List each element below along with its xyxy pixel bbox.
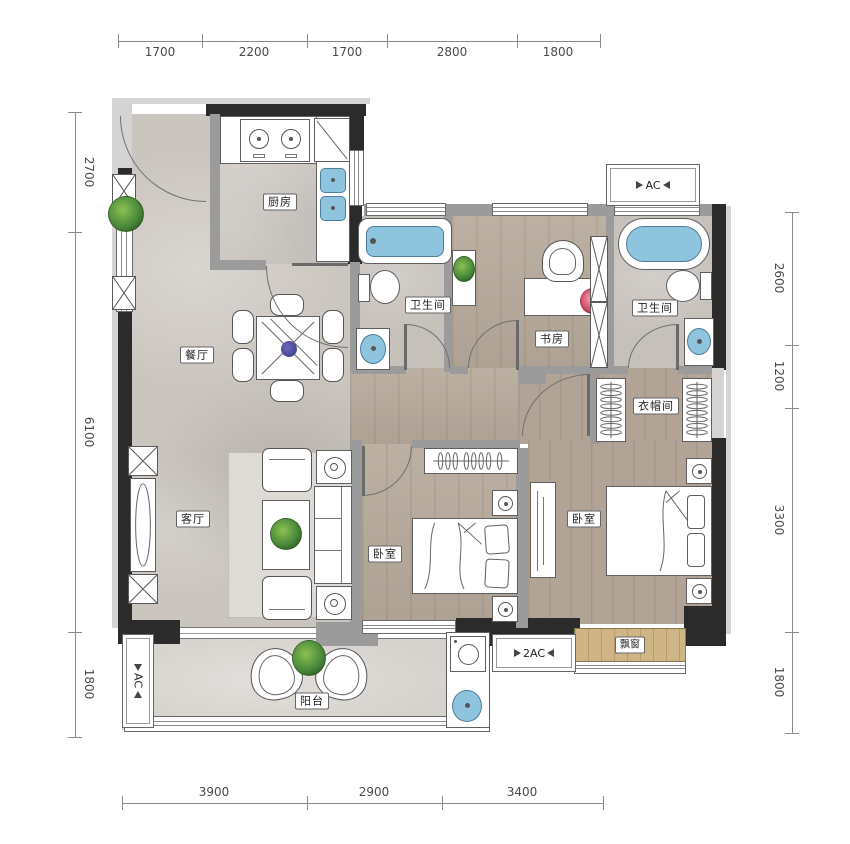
study-cabinet: [590, 302, 608, 368]
balcony-sink: [452, 690, 482, 722]
shaft-box-icon: [128, 574, 158, 604]
ac-platform-double: 2AC: [492, 634, 576, 672]
ac-balcony-label: AC: [132, 673, 145, 688]
bathroom2-door-leaf: [676, 324, 679, 370]
ac-platform-balcony: AC: [122, 634, 154, 728]
study-cabinet: [590, 236, 608, 302]
nightstand: [686, 458, 712, 484]
bathroom1-door-leaf: [404, 324, 407, 370]
bathtub-1-water: [366, 226, 444, 257]
floor-plan: AC 2AC AC 厨房 餐厅 客厅 卫生间 书房 卫生间 衣帽间 卧室 卧室 …: [0, 0, 850, 844]
bed-single: [412, 518, 518, 594]
dim-tick: [122, 796, 123, 810]
armchair: [262, 448, 312, 492]
bathtub-faucet-icon: [370, 238, 376, 244]
dining-centerpiece: [281, 341, 297, 357]
dim-tick: [387, 34, 388, 48]
dim-value: 3400: [507, 785, 538, 799]
window-bay: [574, 660, 686, 674]
dim-value: 1800: [543, 45, 574, 59]
room-label-bathroom-2: 卫生间: [632, 300, 678, 317]
dim-value: 1700: [332, 45, 363, 59]
room-label-bathroom-1: 卫生间: [405, 297, 451, 314]
wall-bathroom1-south-b: [450, 366, 468, 374]
dim-line-left: [75, 112, 76, 737]
dim-value: 1700: [145, 45, 176, 59]
wall-bathroom2-south: [678, 366, 712, 374]
dim-tick: [785, 733, 799, 734]
nightstand: [686, 578, 712, 604]
shell-right: [726, 206, 731, 634]
dim-line-right: [792, 212, 793, 733]
nightstand: [492, 490, 518, 516]
toilet-2-tank: [700, 272, 712, 300]
wall-bottom-right-corner: [684, 606, 726, 646]
sink-1: [360, 334, 386, 364]
armchair: [262, 576, 312, 620]
ac-mark-icon: [547, 649, 554, 657]
window-bathroom1: [366, 203, 446, 216]
bedroom1-door-leaf: [362, 446, 365, 496]
dim-value: 2600: [772, 263, 786, 294]
study-plant-icon: [453, 256, 475, 282]
dim-value: 1200: [772, 361, 786, 392]
ac-top-label: AC: [645, 179, 660, 192]
pillow: [484, 558, 509, 588]
dim-tick: [307, 34, 308, 48]
room-label-bedroom-1: 卧室: [368, 546, 402, 563]
desk-chair: [542, 240, 584, 282]
dim-tick: [785, 632, 799, 633]
dim-line-top: [118, 41, 600, 42]
dim-value: 1800: [82, 669, 96, 700]
dim-tick: [68, 112, 82, 113]
shaft-box-icon: [128, 446, 158, 476]
dim-tick: [68, 232, 82, 233]
toilet-1-bowl: [370, 270, 400, 304]
room-label-kitchen: 厨房: [263, 194, 297, 211]
kitchen-corner-unit: [314, 118, 350, 162]
dim-tick: [118, 34, 119, 48]
side-table: [316, 450, 352, 484]
dining-chair: [270, 380, 304, 402]
clothes-rack: [682, 378, 712, 442]
toilet-1-tank: [358, 274, 370, 302]
wall-kitchen-left: [210, 114, 220, 268]
ac-mark-icon: [663, 181, 670, 189]
dim-value: 3900: [199, 785, 230, 799]
sliding-door-living-balcony: [180, 627, 316, 639]
wall-bedroom1-north: [412, 440, 520, 448]
window-balcony: [124, 716, 490, 732]
kitchen-sink-basin-2: [320, 196, 346, 221]
potted-plant-icon: [108, 196, 144, 232]
dim-tick: [307, 796, 308, 810]
dim-value: 2700: [82, 157, 96, 188]
bathtub-2-water: [626, 226, 702, 262]
room-label-cloakroom: 衣帽间: [633, 398, 679, 415]
wall-top-kitchen: [206, 104, 366, 116]
bedroom2-tv-cabinet: [530, 482, 556, 578]
nightstand: [492, 596, 518, 622]
room-label-bay-window: 飘窗: [615, 637, 645, 654]
dim-tick: [202, 34, 203, 48]
wall-right-lower: [712, 438, 726, 634]
dim-tick: [603, 796, 604, 810]
room-label-balcony: 阳台: [295, 693, 329, 710]
wardrobe: [424, 448, 518, 474]
bedroom2-door-leaf: [587, 374, 590, 436]
window-bedroom1: [362, 620, 456, 634]
kitchen-sink-basin-1: [320, 168, 346, 193]
sofa: [314, 486, 352, 584]
tv-console: [130, 478, 156, 572]
coffee-table-plant-icon: [270, 518, 302, 550]
dim-tick: [785, 408, 799, 409]
ac-platform-top: AC: [606, 164, 700, 206]
room-label-study: 书房: [535, 331, 569, 348]
dim-tick: [517, 34, 518, 48]
ac-mark-icon: [636, 181, 643, 189]
dim-value: 2800: [437, 45, 468, 59]
ac-mark-icon: [134, 691, 142, 698]
wall-right-cloakroom: [712, 368, 724, 440]
dim-tick: [785, 212, 799, 213]
dim-tick: [68, 737, 82, 738]
bed-double: [606, 486, 712, 576]
pillow: [687, 533, 705, 567]
window-kitchen: [349, 150, 364, 206]
side-table: [316, 586, 352, 620]
dim-value: 2900: [359, 785, 390, 799]
washing-machine: [450, 636, 486, 672]
pillow: [484, 524, 510, 555]
clothes-rack: [596, 378, 626, 442]
dim-value: 2200: [239, 45, 270, 59]
toilet-2-bowl: [666, 270, 700, 302]
sink-2: [687, 328, 711, 355]
dim-tick: [442, 796, 443, 810]
study-door-leaf: [516, 320, 519, 370]
ac-mark-icon: [134, 664, 142, 671]
wall-kitchen-bottom: [210, 260, 266, 270]
balcony-plant-icon: [292, 640, 326, 676]
wall-corridor-stub: [518, 366, 546, 384]
kitchen-door-leaf: [292, 263, 348, 266]
dim-tick: [68, 632, 82, 633]
dim-value: 1800: [772, 667, 786, 698]
dim-tick: [785, 345, 799, 346]
shaft-box-icon: [112, 276, 136, 310]
dim-tick: [600, 34, 601, 48]
window-study: [492, 203, 588, 216]
wall-kitchen-right-top: [348, 104, 364, 152]
room-label-dining: 餐厅: [180, 347, 214, 364]
dim-value: 6100: [82, 417, 96, 448]
dim-value: 3300: [772, 505, 786, 536]
stove: [240, 119, 310, 162]
ac-mark-icon: [514, 649, 521, 657]
room-label-living: 客厅: [176, 511, 210, 528]
floor-corridor: [350, 368, 518, 444]
dining-chair: [322, 348, 344, 382]
dining-chair: [232, 310, 254, 344]
dim-line-bottom: [122, 803, 603, 804]
wall-right-upper: [712, 204, 726, 370]
ac-double-label: 2AC: [523, 647, 545, 660]
room-label-bedroom-2: 卧室: [567, 511, 601, 528]
pillow: [687, 495, 705, 529]
dining-chair: [232, 348, 254, 382]
